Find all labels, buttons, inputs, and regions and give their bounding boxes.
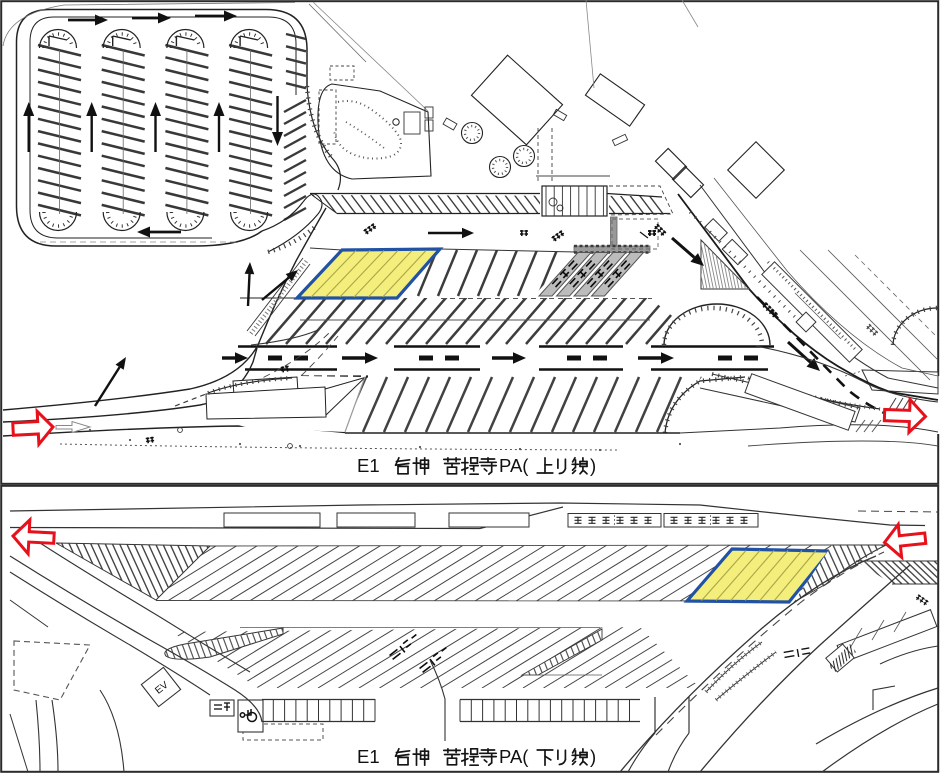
svg-text:E1: E1 xyxy=(357,746,380,767)
svg-text:): ) xyxy=(590,455,596,476)
svg-text:E1: E1 xyxy=(357,455,380,476)
svg-text:): ) xyxy=(590,746,596,767)
svg-text:PA(: PA( xyxy=(499,746,529,767)
svg-text:PA(: PA( xyxy=(499,455,529,476)
